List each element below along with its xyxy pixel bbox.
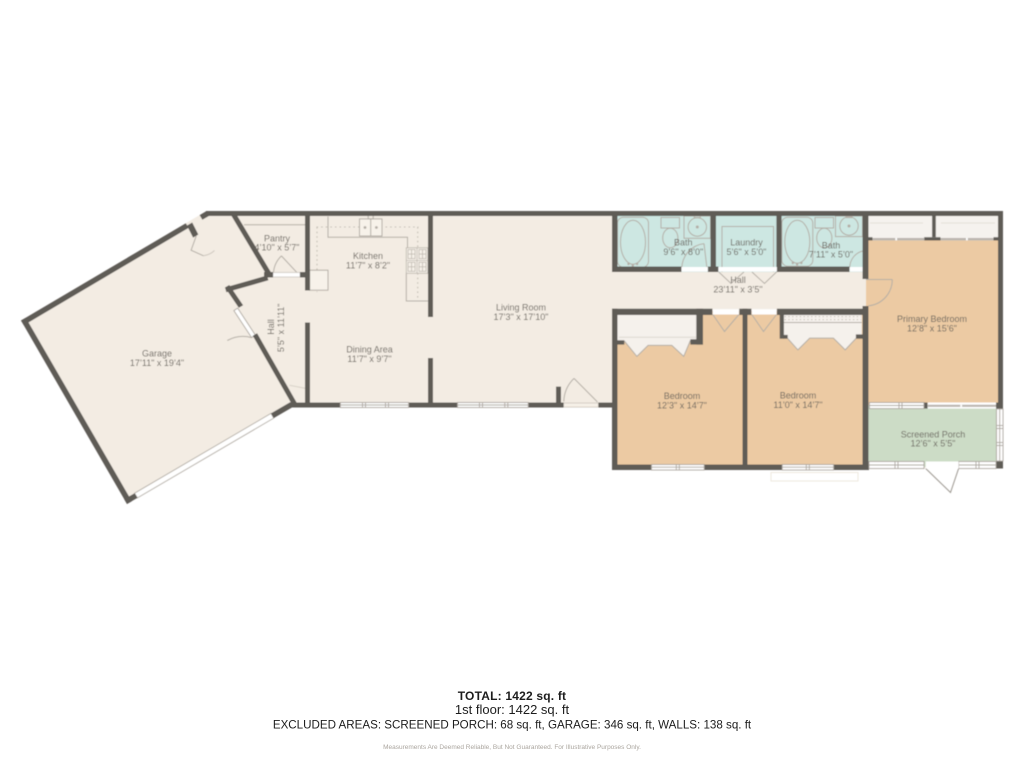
svg-text:TOTAL: 1422 sq. ft: TOTAL: 1422 sq. ft: [458, 689, 567, 703]
svg-text:1st floor: 1422 sq. ft: 1st floor: 1422 sq. ft: [455, 702, 570, 717]
svg-text:7’11" x 5’0": 7’11" x 5’0": [809, 250, 853, 260]
svg-text:Measurements Are Deemed Reliab: Measurements Are Deemed Reliable, But No…: [383, 744, 641, 751]
svg-text:12’8" x 15’6": 12’8" x 15’6": [907, 324, 957, 334]
svg-text:11’7" x 9’7": 11’7" x 9’7": [347, 354, 391, 364]
svg-text:12’3" x 14’7": 12’3" x 14’7": [657, 400, 707, 410]
svg-text:Kitchen: Kitchen: [353, 251, 383, 261]
svg-text:9’6" x 8’0": 9’6" x 8’0": [663, 247, 703, 257]
svg-text:23’11" x 3’5": 23’11" x 3’5": [713, 284, 762, 294]
svg-text:EXCLUDED AREAS: SCREENED PORCH: EXCLUDED AREAS: SCREENED PORCH: 68 sq. f…: [273, 719, 752, 732]
svg-text:4’10" x 5’7": 4’10" x 5’7": [255, 243, 300, 253]
svg-text:5’5" x 11’11": 5’5" x 11’11": [276, 304, 286, 353]
svg-text:11’7" x 8’2": 11’7" x 8’2": [346, 260, 390, 270]
svg-text:Hall: Hall: [266, 319, 276, 335]
svg-text:Living Room: Living Room: [496, 303, 546, 313]
svg-text:17’11" x 19’4": 17’11" x 19’4": [130, 358, 184, 368]
svg-text:12’6" x 5’5": 12’6" x 5’5": [911, 439, 956, 449]
svg-text:5’6" x 5’0": 5’6" x 5’0": [727, 247, 767, 257]
svg-text:Primary Bedroom: Primary Bedroom: [897, 314, 967, 324]
svg-text:Bedroom: Bedroom: [780, 391, 817, 401]
svg-text:11’0" x 14’7": 11’0" x 14’7": [773, 400, 822, 410]
svg-text:17’3" x 17’10": 17’3" x 17’10": [494, 312, 549, 322]
